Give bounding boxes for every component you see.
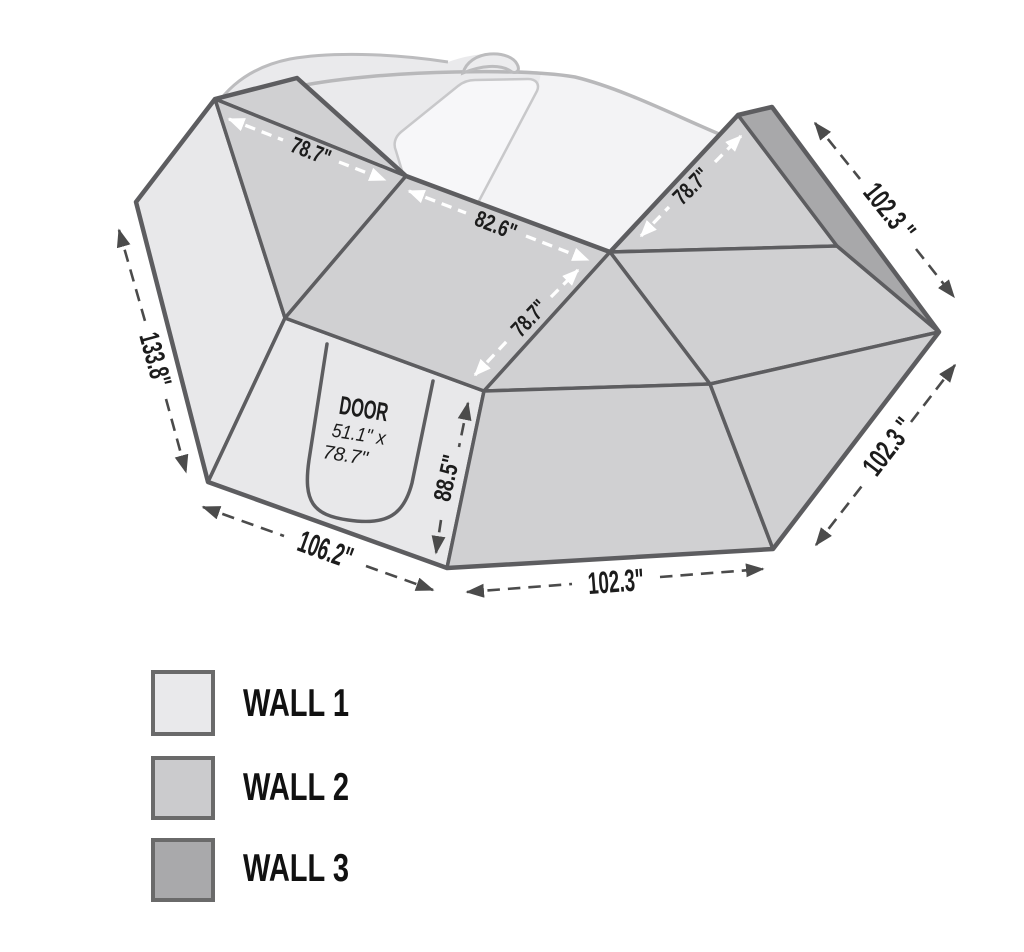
svg-text:102.3": 102.3": [587, 562, 646, 601]
svg-text:WALL 3: WALL 3: [243, 847, 349, 890]
svg-text:WALL 2: WALL 2: [243, 766, 349, 809]
svg-text:WALL 1: WALL 1: [243, 682, 349, 725]
